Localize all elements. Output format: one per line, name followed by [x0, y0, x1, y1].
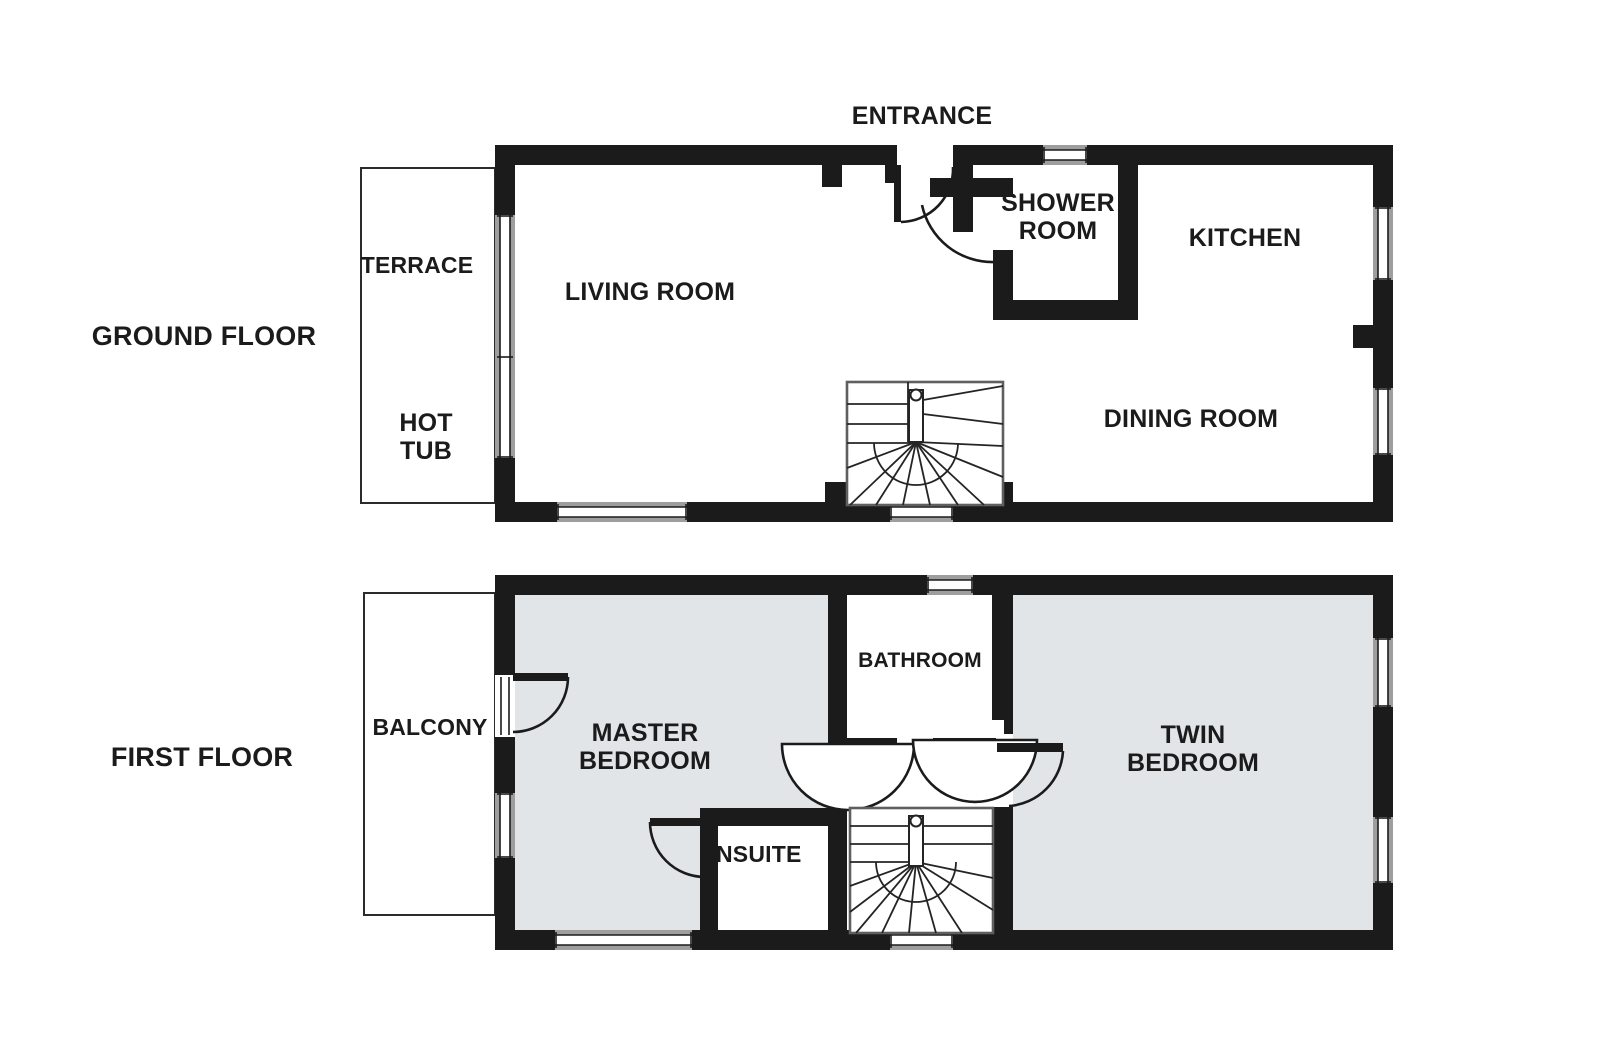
- entrance-door-arc: [901, 167, 953, 222]
- balcony-outline: [364, 593, 495, 915]
- room-label-terrace: TERRACE: [361, 253, 474, 279]
- room-label-balcony: BALCONY: [372, 715, 487, 741]
- room-label-hot-tub: HOT TUB: [399, 409, 452, 465]
- twin-door-leaf: [997, 743, 1063, 752]
- floorplan-page: GROUND FLOOR TERRACE HOT TUB LIVING ROOM…: [0, 0, 1614, 1055]
- ground-stairs: [847, 382, 1003, 505]
- window-dining: [1373, 388, 1393, 455]
- window-twin-upper: [1373, 638, 1393, 707]
- window-master-left: [495, 793, 515, 858]
- balcony-door-threshold: [495, 675, 515, 737]
- ground-floor-plan: [361, 145, 1393, 522]
- window-master-bottom: [555, 930, 692, 950]
- wall-stub-right: [1353, 325, 1373, 348]
- window-living-left: [495, 215, 515, 458]
- floorplan-drawing: [0, 0, 1614, 1055]
- window-kitchen: [1373, 207, 1393, 280]
- room-label-bathroom: BATHROOM: [858, 649, 982, 673]
- room-label-twin-bedroom: TWIN BEDROOM: [1127, 721, 1259, 777]
- entrance-door-leaf: [894, 165, 901, 222]
- room-label-ensuite: ENSUITE: [700, 842, 801, 868]
- room-label-kitchen: KITCHEN: [1189, 224, 1302, 252]
- ensuite-door-leaf: [650, 818, 705, 826]
- room-label-shower-room: SHOWER ROOM: [1001, 189, 1115, 245]
- window-living-bottom: [557, 502, 687, 522]
- window-bathroom-top: [927, 575, 973, 595]
- first-floor-title: FIRST FLOOR: [111, 742, 293, 772]
- label-entrance: ENTRANCE: [852, 102, 993, 130]
- room-label-dining-room: DINING ROOM: [1104, 405, 1278, 433]
- window-twin-lower: [1373, 817, 1393, 883]
- window-shower-top: [1043, 145, 1087, 165]
- room-label-living-room: LIVING ROOM: [565, 278, 735, 306]
- ground-floor-title: GROUND FLOOR: [92, 321, 316, 351]
- first-stairs: [850, 808, 993, 933]
- wall-stub-top: [822, 165, 842, 187]
- balcony-door-leaf: [513, 673, 568, 681]
- room-label-master-bedroom: MASTER BEDROOM: [579, 719, 711, 775]
